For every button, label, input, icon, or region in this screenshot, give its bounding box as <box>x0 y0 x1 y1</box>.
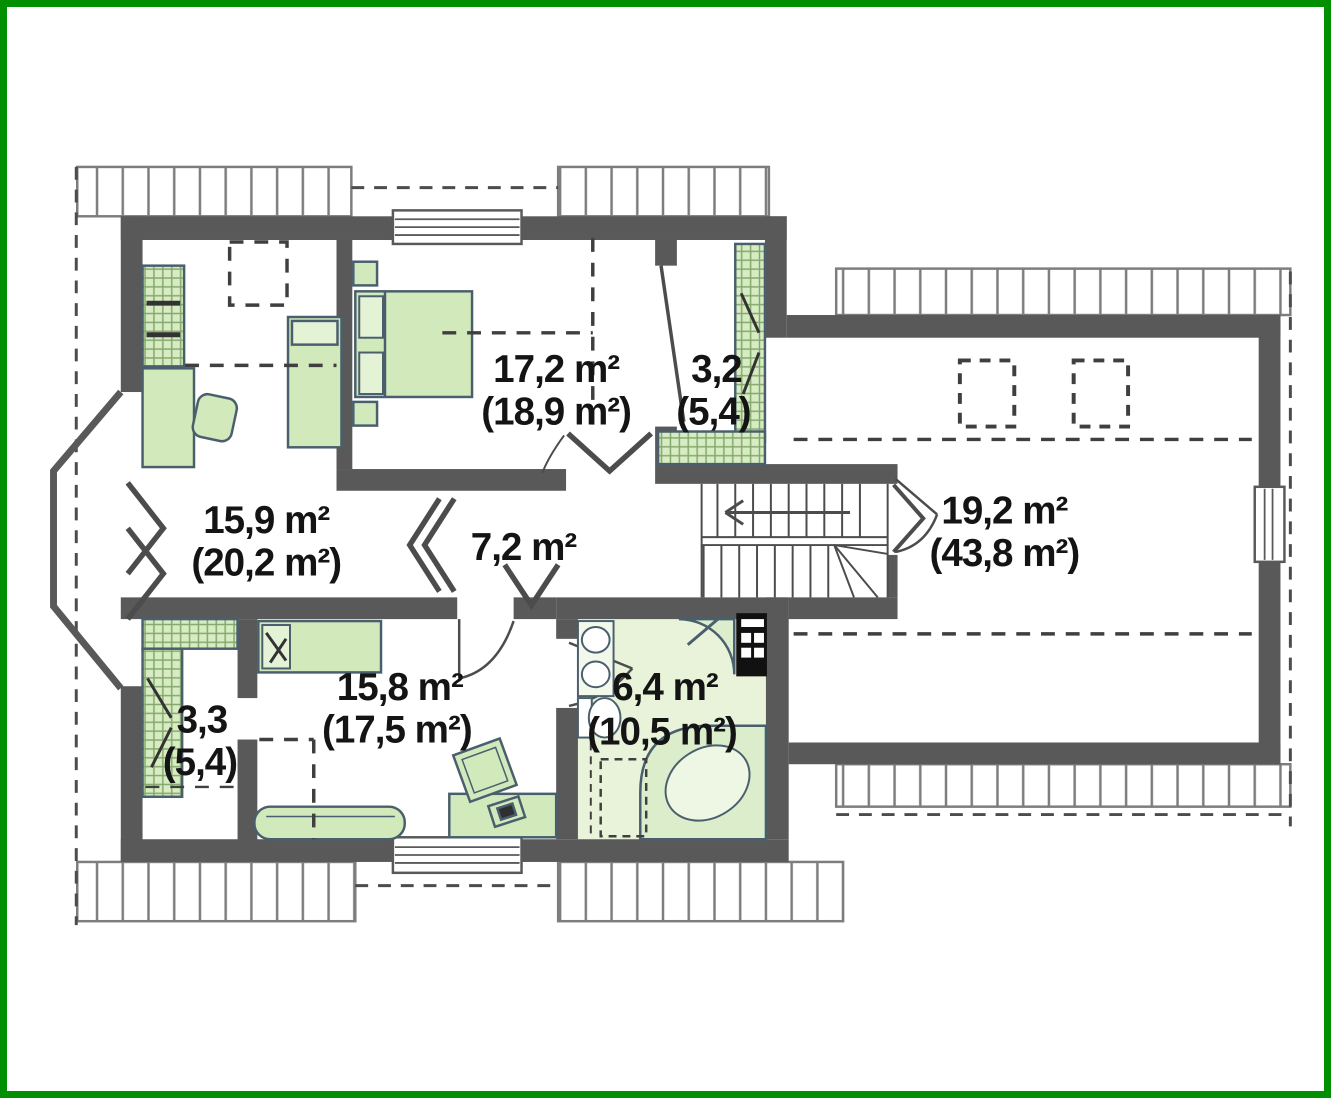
label-closet-sw-area: 3,3 <box>177 699 228 742</box>
window-north-dormer <box>393 210 522 244</box>
staircase <box>702 484 888 598</box>
floor-plan: 15,9 m² (20,2 m²) 17,2 m² (18,9 m²) 3,2 … <box>7 7 1324 1091</box>
skylight-dashed-nw <box>230 242 287 305</box>
label-bedroom-n-gross: (18,9 m²) <box>481 391 631 434</box>
nightstand-north <box>353 262 377 286</box>
stair-winders <box>834 545 887 597</box>
door-bedroom-north-arc <box>542 435 564 473</box>
label-attic-e-gross: (43,8 m²) <box>930 532 1080 575</box>
window-east-wing <box>1255 487 1285 562</box>
floor-plan-page: 15,9 m² (20,2 m²) 17,2 m² (18,9 m²) 3,2 … <box>0 0 1331 1098</box>
eave-top-right <box>558 167 769 216</box>
eave-bottom-right <box>558 862 843 921</box>
label-closet-ne-area: 3,2 <box>691 348 742 391</box>
boiler <box>736 613 767 676</box>
opening-hall-west-zigzag <box>410 499 455 592</box>
closet-ne-shelves-bottom <box>658 432 765 465</box>
label-closet-sw-gross: (5,4) <box>163 741 237 784</box>
skylight-dashed-e1 <box>960 360 1014 426</box>
label-hall-area: 7,2 m² <box>471 526 578 569</box>
eave-wing-top <box>836 269 1290 315</box>
double-bed-pillow-2 <box>359 353 383 394</box>
label-bedroom-n-area: 17,2 m² <box>493 348 620 391</box>
label-attic-e-area: 19,2 m² <box>941 489 1068 532</box>
desk-nw <box>143 368 194 467</box>
label-bathroom-gross: (10,5 m²) <box>587 711 737 754</box>
sink-1 <box>582 627 610 653</box>
stair-treads-upper <box>717 484 859 537</box>
single-bed-nw-pillow <box>292 321 338 345</box>
double-bed-pillow-1 <box>359 296 383 337</box>
sink-2 <box>582 662 610 688</box>
bay-window-wall <box>54 392 121 688</box>
label-bedroom-nw-gross: (20,2 m²) <box>191 542 341 585</box>
label-bathroom-area: 6,4 m² <box>612 666 719 709</box>
label-bedroom-s-gross: (17,5 m²) <box>322 709 472 752</box>
nightstand-south <box>353 402 377 426</box>
label-bedroom-s-area: 15,8 m² <box>337 666 464 709</box>
sofa <box>254 807 404 840</box>
label-bedroom-nw-area: 15,9 m² <box>203 499 330 542</box>
door-bedroom-south <box>459 619 513 678</box>
label-closet-ne-gross: (5,4) <box>676 391 750 434</box>
window-south-dormer <box>393 837 522 873</box>
opening-hall-north-chevron <box>568 433 651 471</box>
closet-sw-shelf-top <box>143 619 238 649</box>
stair-treads-lower <box>704 545 829 597</box>
eave-wing-bottom <box>836 764 1290 806</box>
wardrobe <box>143 266 185 367</box>
eave-top-left <box>77 167 351 216</box>
eave-bottom-left <box>77 862 355 921</box>
office-chair-nw <box>191 392 239 443</box>
skylight-dashed-e2 <box>1074 360 1128 426</box>
